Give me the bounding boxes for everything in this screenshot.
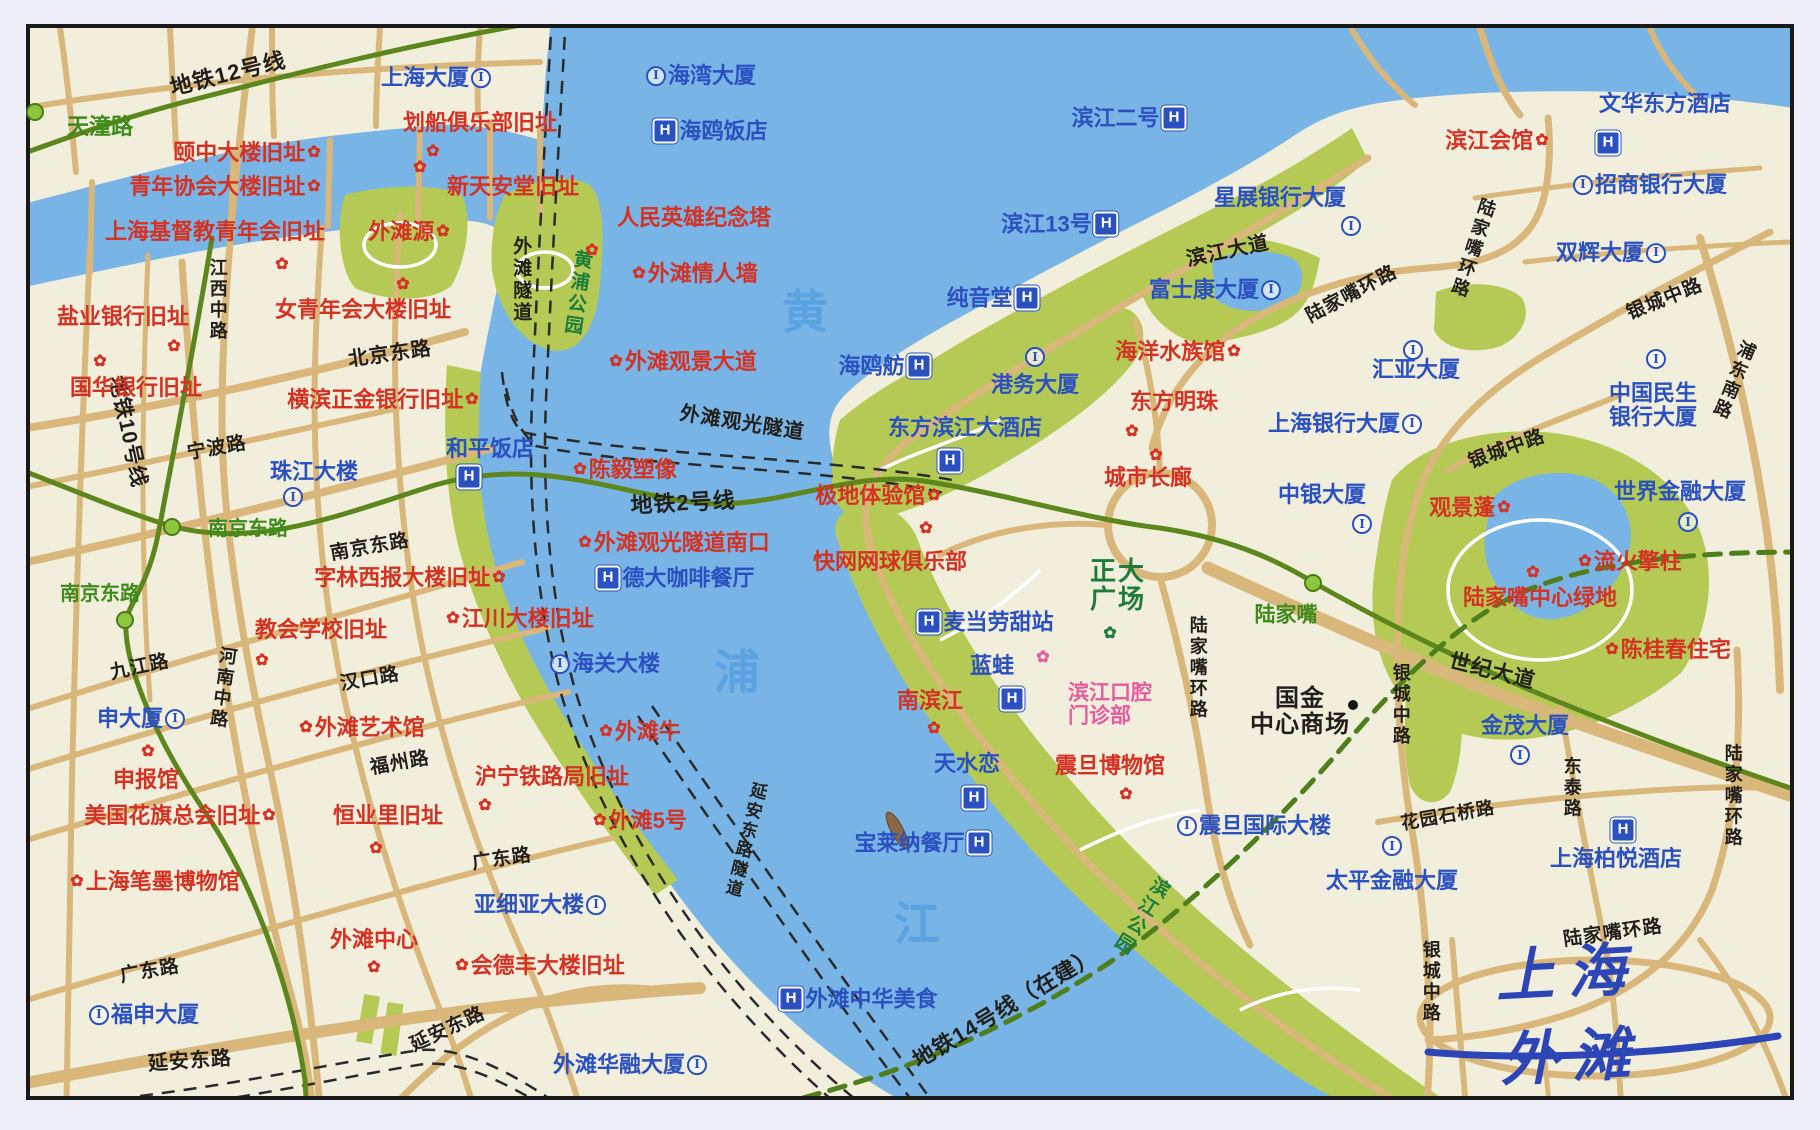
building-icon: I [471, 68, 491, 88]
map-label-mk: ✿ [413, 160, 426, 176]
building-icon: I [283, 487, 303, 507]
map-label-her: 划船俱乐部旧址 [403, 111, 557, 135]
heritage-flower-icon: ✿ [1497, 500, 1510, 516]
map-label-her: ✿陈桂春住宅 [1605, 638, 1730, 662]
map-label-mk [1348, 700, 1358, 710]
river-name-char: 江 [894, 900, 940, 950]
map-label-bld: 蓝蛙 [970, 654, 1014, 678]
heritage-flower-icon: ✿ [1535, 133, 1548, 149]
pink-flower-icon: ✿ [1036, 650, 1049, 666]
map-label-bld: 港务大厦 [991, 373, 1079, 397]
metro-line-14-label: 地铁14号线（在建） [909, 944, 1102, 1073]
hotel-icon: H [916, 610, 941, 635]
map-label-mk: H [1611, 818, 1636, 843]
map-label-bld: 申大厦I [97, 707, 185, 731]
map-label-her: 美国花旗总会旧址✿ [84, 804, 275, 828]
map-label-bld: 汇亚大厦 [1372, 358, 1460, 382]
map-label-mk: ✿ [919, 521, 932, 537]
heritage-flower-icon: ✿ [927, 721, 940, 737]
sightseeing-tunnel-label: 外滩观光隧道 [678, 403, 806, 444]
map-label-bld: I福申大厦 [89, 1003, 199, 1027]
map-label-her: 观景蓬✿ [1429, 496, 1510, 520]
map-label-park: 黄浦公园 [560, 248, 593, 338]
map-label-her: 震旦博物馆 [1055, 754, 1165, 778]
map-label-mk: ✿ [1526, 565, 1539, 581]
map-label-bld: 富士康大厦I [1149, 278, 1281, 302]
metro-line-2-label: 地铁2号线 [630, 488, 736, 517]
map-label-her: 海洋水族馆✿ [1115, 340, 1240, 364]
map-label-st: 国金 中心商场 [1250, 686, 1350, 738]
building-icon: I [1403, 340, 1423, 360]
heritage-flower-icon: ✿ [1125, 424, 1138, 440]
map-label-her: 外滩中心 [330, 928, 418, 952]
map-label-her: ✿流火擎柱 [1578, 550, 1681, 574]
building-icon: I [1573, 175, 1593, 195]
map-label-bld: 宝莱纳餐厅H [854, 831, 991, 856]
building-icon: I [687, 1055, 707, 1075]
heritage-flower-icon: ✿ [446, 611, 459, 627]
map-label-mk: ✿ [367, 960, 380, 976]
map-label-bld: 滨江13号H [1001, 212, 1118, 237]
heritage-flower-icon: ✿ [1227, 344, 1240, 360]
map-label-mk: ✿ [167, 339, 180, 355]
map-label-st: 河南中路 [207, 645, 238, 731]
map-label-st: 延安东路 [147, 1048, 232, 1075]
building-icon: I [1646, 349, 1666, 369]
map-label-mk: I [1678, 512, 1698, 532]
heritage-flower-icon: ✿ [455, 958, 468, 974]
heritage-flower-icon: ✿ [1119, 787, 1132, 803]
map-label-st: 陆家嘴环路 [1722, 744, 1741, 849]
map-label-her: 南滨江 [897, 689, 963, 713]
map-label-her: 极地体验馆✿ [815, 484, 940, 508]
green-flower-icon: ✿ [1103, 626, 1116, 642]
map-label-her: 滨江会馆✿ [1445, 129, 1548, 153]
heritage-flower-icon: ✿ [436, 224, 449, 240]
map-label-mk: I [1646, 349, 1666, 369]
map-label-mk: ✿ [1103, 626, 1116, 642]
map-label-st: 陆家嘴环路 [1303, 262, 1401, 327]
map-label-st: 陆家嘴环路 [1187, 616, 1206, 721]
river-name-char: 浦 [714, 648, 760, 698]
map-label-mk: ✿ [1036, 650, 1049, 666]
map-label-bld: 上海柏悦酒店 [1550, 847, 1682, 871]
map-label-grn: 南京东路 [60, 584, 140, 606]
map-label-bld: 滨江二号H [1071, 106, 1186, 131]
building-icon: I [1025, 347, 1045, 367]
map-label-pink: 滨江口腔 门诊部 [1068, 682, 1152, 727]
map-label-mk: ✿ [369, 841, 382, 857]
map-label-mk [26, 103, 44, 121]
building-icon: I [1341, 216, 1361, 236]
map-label-bld: 亚细亚大楼I [474, 893, 606, 917]
map-label-st: 江西中路 [207, 258, 226, 342]
map-label-bld: H德大咖啡餐厅 [595, 566, 754, 591]
heritage-flower-icon: ✿ [167, 339, 180, 355]
heritage-flower-icon: ✿ [396, 277, 409, 293]
hotel-icon: H [778, 987, 803, 1012]
building-icon: I [1261, 280, 1281, 300]
map-label-her: 外滩源✿ [368, 220, 449, 244]
heritage-flower-icon: ✿ [262, 808, 275, 824]
map-label-mk: ✿ [396, 277, 409, 293]
map-label-park: 滨江公园 [1108, 872, 1172, 957]
map-label-st: 银城中路 [1466, 427, 1548, 474]
map-label-mk [116, 611, 134, 629]
map-label-mk: I [1025, 347, 1045, 367]
map-label-her: ✿外滩观景大道 [609, 350, 756, 374]
hotel-icon: H [1611, 818, 1636, 843]
map-label-mk: ✿ [1125, 424, 1138, 440]
map-label-grn: 南京东路 [208, 519, 288, 541]
map-label-her: 教会学校旧址 [255, 618, 387, 642]
map-label-her: 上海基督教青年会旧址 [105, 220, 325, 244]
hotel-icon: H [938, 449, 963, 474]
map-label-mk: I [283, 487, 303, 507]
map-label-bld: 星展银行大厦 [1214, 186, 1346, 210]
heritage-flower-icon: ✿ [632, 266, 645, 282]
building-icon: I [165, 709, 185, 729]
map-label-bld: 文华东方酒店 [1599, 92, 1731, 116]
map-label-bld: 中国民生 银行大厦 [1609, 381, 1697, 429]
map-label-mk: ✿ [93, 354, 106, 370]
building-icon: I [1177, 816, 1197, 836]
heritage-flower-icon: ✿ [307, 179, 320, 195]
map-label-st: 花园石桥路 [1400, 798, 1497, 834]
building-icon: I [89, 1005, 109, 1025]
map-label-mk: ✿ [255, 653, 268, 669]
hotel-icon: H [1162, 106, 1187, 131]
map-label-bld: I招商银行大厦 [1573, 173, 1727, 197]
map-label-her: 沪宁铁路局旧址 [475, 765, 629, 789]
heritage-flower-icon: ✿ [255, 653, 268, 669]
heritage-flower-icon: ✿ [1605, 642, 1618, 658]
heritage-flower-icon: ✿ [1578, 554, 1591, 570]
map-label-mk: I [1352, 514, 1372, 534]
heritage-flower-icon: ✿ [93, 354, 106, 370]
map-label-bld: 金茂大厦 [1481, 714, 1569, 738]
heritage-flower-icon: ✿ [465, 392, 478, 408]
map-label-st: 宁波路 [186, 434, 249, 465]
heritage-flower-icon: ✿ [585, 243, 598, 259]
station-dot-icon [26, 103, 44, 121]
hotel-icon: H [1015, 286, 1040, 311]
building-icon: I [550, 654, 570, 674]
map-label-st: 延安东路 [407, 1004, 488, 1056]
map-label-st: 世纪大道 [1447, 650, 1538, 693]
map-label-her: 横滨正金银行旧址✿ [287, 388, 478, 412]
map-label-mk: I [1341, 216, 1361, 236]
map-label-bld: 外滩华融大厦I [553, 1053, 707, 1077]
map-label-mk [1304, 574, 1322, 592]
heritage-flower-icon: ✿ [275, 257, 288, 273]
map-label-bld: 上海银行大厦I [1268, 412, 1422, 436]
map-label-her: 陆家嘴中心绿地 [1463, 586, 1617, 610]
map-label-her: 恒业里旧址 [333, 804, 443, 828]
map-label-her: 颐中大楼旧址✿ [173, 141, 320, 165]
hotel-icon: H [967, 831, 992, 856]
heritage-flower-icon: ✿ [367, 960, 380, 976]
hotel-icon: H [1596, 131, 1621, 156]
map-label-her: 盐业银行旧址 [57, 305, 189, 329]
heritage-flower-icon: ✿ [369, 841, 382, 857]
map-label-mk: H [938, 449, 963, 474]
map-label-her: 国华银行旧址 [70, 376, 202, 400]
metro-line-12-label: 地铁12号线 [168, 48, 289, 100]
poi-dot-icon [1348, 700, 1358, 710]
map-label-grn: 陆家嘴 [1255, 605, 1318, 628]
map-label-her: 新天安堂旧址 [447, 175, 579, 199]
heritage-flower-icon: ✿ [1526, 565, 1539, 581]
map-label-st: 福州路 [369, 749, 432, 780]
map-label-bld: 纯音堂H [946, 286, 1039, 311]
map-label-her: ✿陈毅塑像 [573, 458, 676, 482]
map-label-mk: ✿ [1119, 787, 1132, 803]
metro-line-10-label: 地铁10号线 [104, 374, 150, 490]
map-label-bld: H麦当劳甜站 [916, 610, 1053, 635]
map-label-mk [163, 518, 181, 536]
map-label-st: 东泰路 [1561, 757, 1580, 820]
hotel-icon: H [457, 465, 482, 490]
map-label-st: 广东路 [471, 846, 533, 875]
hotel-icon: H [1094, 212, 1119, 237]
map-label-bld: 上海大厦I [381, 66, 491, 90]
map-label-bld: 中银大厦 [1278, 483, 1366, 507]
map-label-mk: H [1000, 687, 1025, 712]
map-label-bld: 天水恋 [934, 752, 1000, 776]
heritage-flower-icon: ✿ [919, 521, 932, 537]
heritage-flower-icon: ✿ [593, 813, 606, 829]
building-icon: I [646, 66, 666, 86]
map-label-her: ✿外滩艺术馆 [299, 716, 424, 740]
heritage-flower-icon: ✿ [1149, 448, 1162, 464]
map-label-her: ✿上海笔墨博物馆 [70, 870, 239, 894]
map-label-grn: 天潼路 [67, 115, 133, 139]
map-label-st: 九江路 [109, 652, 172, 685]
heritage-flower-icon: ✿ [141, 744, 154, 760]
heritage-flower-icon: ✿ [927, 488, 940, 504]
map-title: 上海外滩 [1493, 918, 1716, 1097]
map-label-bld: 双辉大厦I [1556, 241, 1666, 265]
building-icon: I [1402, 414, 1422, 434]
map-label-st: 银城中路 [1624, 276, 1706, 325]
map-label-bld: I海湾大厦 [646, 64, 756, 88]
map-label-mk: ✿ [426, 144, 439, 160]
building-icon: I [1352, 514, 1372, 534]
map-label-bld: 海鸥舫H [838, 354, 931, 379]
map-label-mk: ✿ [478, 798, 491, 814]
building-icon: I [1382, 836, 1402, 856]
map-label-bld: H外滩中华美食 [778, 987, 937, 1012]
heritage-flower-icon: ✿ [609, 354, 622, 370]
heritage-flower-icon: ✿ [307, 145, 320, 161]
map-label-bld: 世界金融大厦 [1614, 480, 1746, 504]
map-label-her: ✿会德丰大楼旧址 [455, 954, 624, 978]
station-dot-icon [1304, 574, 1322, 592]
bund-map-canvas: 地铁12号线地铁10号线地铁2号线地铁14号线（在建）外滩隧道外滩观光隧道延安东… [0, 0, 1820, 1130]
station-dot-icon [116, 611, 134, 629]
map-label-mk: ✿ [927, 721, 940, 737]
map-label-her: ✿外滩观光隧道南口 [578, 531, 769, 555]
building-icon: I [1510, 745, 1530, 765]
map-label-her: 人民英雄纪念塔 [617, 206, 771, 230]
map-label-bld: 东方滨江大酒店 [888, 416, 1042, 440]
building-icon: I [586, 895, 606, 915]
map-label-st: 南京东路 [329, 531, 411, 565]
map-label-st: 浦东南路 [1708, 337, 1757, 422]
map-label-her: 东方明珠 [1130, 390, 1218, 414]
map-label-mk: ✿ [275, 257, 288, 273]
map-label-her: 城市长廊 [1104, 466, 1192, 490]
yanan-tunnel-label: 延安东路隧道 [721, 780, 768, 901]
station-dot-icon [163, 518, 181, 536]
hotel-icon: H [595, 566, 620, 591]
heritage-flower-icon: ✿ [492, 570, 505, 586]
hotel-icon: H [652, 119, 677, 144]
river-name-char: 黄 [782, 288, 828, 338]
map-label-her: ✿外滩5号 [593, 809, 687, 833]
map-label-st: 汉口路 [339, 665, 402, 696]
map-label-st: 银城中路 [1390, 663, 1409, 747]
hotel-icon: H [907, 354, 932, 379]
map-label-mk: ✿ [585, 243, 598, 259]
heritage-flower-icon: ✿ [426, 144, 439, 160]
heritage-flower-icon: ✿ [573, 462, 586, 478]
heritage-flower-icon: ✿ [299, 720, 312, 736]
map-label-st: 广东路 [119, 957, 182, 988]
building-icon: I [1646, 243, 1666, 263]
heritage-flower-icon: ✿ [413, 160, 426, 176]
heritage-flower-icon: ✿ [478, 798, 491, 814]
map-label-mk: ✿ [1149, 448, 1162, 464]
map-label-bld: I震旦国际大楼 [1177, 814, 1331, 838]
map-label-st: 滨江大道 [1185, 233, 1272, 272]
map-label-bld: 珠江大楼 [270, 460, 358, 484]
map-label-her: 申报馆 [113, 768, 179, 792]
building-icon: I [1678, 512, 1698, 532]
map-label-st: 银城中路 [1420, 940, 1439, 1024]
map-label-her: ✿外滩牛 [599, 720, 680, 744]
map-label-mk: I [1403, 340, 1423, 360]
map-label-mk: H [962, 786, 987, 811]
map-label-her: ✿江川大楼旧址 [446, 607, 593, 631]
map-label-her: 女青年会大楼旧址 [275, 298, 451, 322]
heritage-flower-icon: ✿ [578, 535, 591, 551]
map-label-st: 陆家嘴环路 [1447, 195, 1498, 301]
map-label-park: 正大 广场 [1090, 557, 1146, 613]
map-label-mk: I [1510, 745, 1530, 765]
map-label-bld: 和平饭店 [446, 437, 534, 461]
hotel-icon: H [962, 786, 987, 811]
map-label-her: 字林西报大楼旧址✿ [314, 566, 505, 590]
map-label-mk: H [457, 465, 482, 490]
heritage-flower-icon: ✿ [70, 874, 83, 890]
heritage-flower-icon: ✿ [599, 724, 612, 740]
map-label-mk: I [1382, 836, 1402, 856]
map-label-bld: 太平金融大厦 [1326, 869, 1458, 893]
map-label-her: 青年协会大楼旧址✿ [129, 175, 320, 199]
map-label-her: 快网网球俱乐部 [813, 550, 967, 574]
map-label-bld: H海鸥饭店 [652, 119, 767, 144]
map-label-bld: I海关大楼 [550, 652, 660, 676]
hotel-icon: H [1000, 687, 1025, 712]
bund-tunnel-label: 外滩隧道 [510, 236, 531, 324]
map-label-st: 北京东路 [347, 338, 433, 371]
map-label-mk: ✿ [141, 744, 154, 760]
map-label-her: ✿外滩情人墙 [632, 262, 757, 286]
map-label-mk: H [1596, 131, 1621, 156]
